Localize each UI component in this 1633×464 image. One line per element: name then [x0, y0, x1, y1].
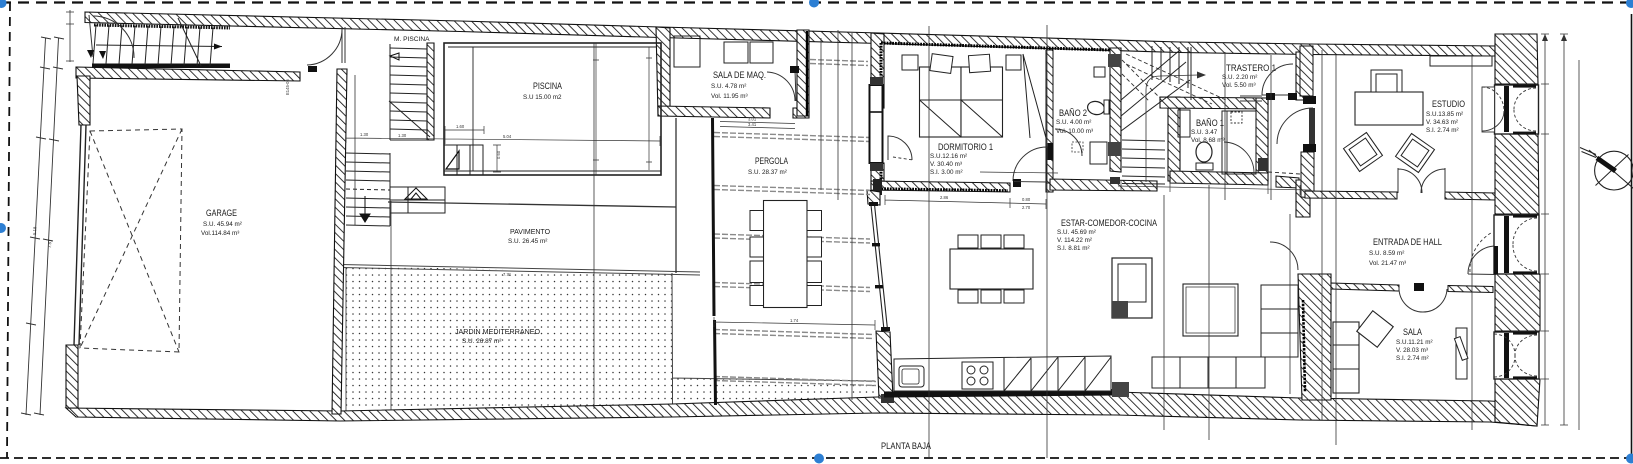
svg-text:JARDIN MEDITERRANEO: JARDIN MEDITERRANEO	[455, 329, 541, 336]
svg-text:SALA: SALA	[1403, 327, 1422, 337]
svg-text:V. 114.22 m²: V. 114.22 m²	[1057, 237, 1092, 244]
svg-text:5.18: 5.18	[32, 226, 37, 235]
svg-text:S.I. 2.74 m²: S.I. 2.74 m²	[1426, 127, 1459, 134]
svg-text:DORMITORIO 1: DORMITORIO 1	[938, 142, 993, 152]
svg-text:ESTUDIO: ESTUDIO	[1432, 99, 1465, 109]
svg-text:S.U.12.16 m²: S.U.12.16 m²	[930, 153, 967, 160]
svg-text:S.U. 45.69 m²: S.U. 45.69 m²	[1057, 229, 1096, 236]
svg-text:0.80: 0.80	[1022, 197, 1031, 202]
svg-text:Vol. 11.95 m³: Vol. 11.95 m³	[711, 93, 748, 100]
svg-text:PERGOLA: PERGOLA	[755, 156, 788, 166]
svg-text:SALA DE MAQ.: SALA DE MAQ.	[713, 70, 766, 80]
svg-text:S.U. 3.47: S.U. 3.47	[1191, 129, 1218, 136]
svg-text:V. 30.40 m³: V. 30.40 m³	[930, 161, 962, 168]
svg-text:S.U. 26.45 m²: S.U. 26.45 m²	[508, 238, 547, 245]
svg-text:GARAGE: GARAGE	[206, 208, 237, 218]
svg-text:V. 34.63 m²: V. 34.63 m²	[1426, 119, 1458, 126]
svg-text:BAÑO 2: BAÑO 2	[1059, 108, 1087, 118]
svg-text:E145-05: E145-05	[285, 78, 290, 95]
svg-text:Vol. 10.00 m³: Vol. 10.00 m³	[1056, 128, 1093, 135]
svg-text:1.60: 1.60	[456, 124, 465, 129]
svg-text:S.U. 2.20 m²: S.U. 2.20 m²	[1222, 74, 1257, 81]
svg-text:ESTAR-COMEDOR-COCINA: ESTAR-COMEDOR-COCINA	[1061, 218, 1157, 228]
svg-text:1.30: 1.30	[398, 133, 407, 138]
svg-text:V. 28.03 m³: V. 28.03 m³	[1396, 347, 1428, 354]
svg-text:ENTRADA DE HALL: ENTRADA DE HALL	[1373, 237, 1442, 247]
svg-text:7.71: 7.71	[503, 272, 512, 277]
svg-text:TRASTERO 1: TRASTERO 1	[1226, 63, 1276, 73]
svg-text:5.04: 5.04	[503, 134, 512, 139]
svg-text:0.60: 0.60	[496, 150, 501, 159]
svg-text:S.U. 26.87 m²: S.U. 26.87 m²	[462, 338, 501, 345]
svg-text:7.81: 7.81	[47, 239, 52, 248]
svg-text:S.U 15.00 m2: S.U 15.00 m2	[523, 94, 562, 101]
svg-text:S.U. 4.78 m²: S.U. 4.78 m²	[711, 83, 746, 90]
svg-text:BAÑO 1: BAÑO 1	[1196, 118, 1224, 128]
svg-text:2.86: 2.86	[940, 195, 949, 200]
svg-text:S.U. 28.37 m²: S.U. 28.37 m²	[748, 169, 787, 176]
svg-text:Vol. 21.47 m³: Vol. 21.47 m³	[1369, 260, 1406, 267]
svg-text:S.U. 4.00 m²: S.U. 4.00 m²	[1056, 119, 1091, 126]
svg-text:S.I. 8.81 m²: S.I. 8.81 m²	[1057, 245, 1090, 252]
svg-text:1.30: 1.30	[360, 132, 369, 137]
svg-text:2.70: 2.70	[1022, 205, 1031, 210]
svg-text:1.74: 1.74	[790, 318, 799, 323]
svg-text:S.U.13.85 m²: S.U.13.85 m²	[1426, 111, 1463, 118]
svg-text:S.I. 3.00 m²: S.I. 3.00 m²	[930, 169, 963, 176]
svg-text:M. PISCINA: M. PISCINA	[394, 36, 430, 43]
svg-text:S.U.11.21 m²: S.U.11.21 m²	[1396, 339, 1433, 346]
svg-text:S.U. 45.94 m²: S.U. 45.94 m²	[203, 221, 242, 228]
svg-text:PISCINA: PISCINA	[533, 81, 562, 91]
svg-text:3.01: 3.01	[748, 117, 757, 122]
svg-text:PAVIMENTO: PAVIMENTO	[510, 229, 551, 236]
svg-text:Vol. 5.50 m³: Vol. 5.50 m³	[1222, 82, 1256, 89]
svg-text:S.I. 2.74 m²: S.I. 2.74 m²	[1396, 355, 1429, 362]
svg-text:Vol.114.84 m³: Vol.114.84 m³	[201, 230, 239, 237]
svg-text:3.41: 3.41	[748, 122, 757, 127]
svg-text:S.U. 8.59 m²: S.U. 8.59 m²	[1369, 250, 1404, 257]
svg-text:PLANTA BAJA: PLANTA BAJA	[881, 441, 931, 452]
